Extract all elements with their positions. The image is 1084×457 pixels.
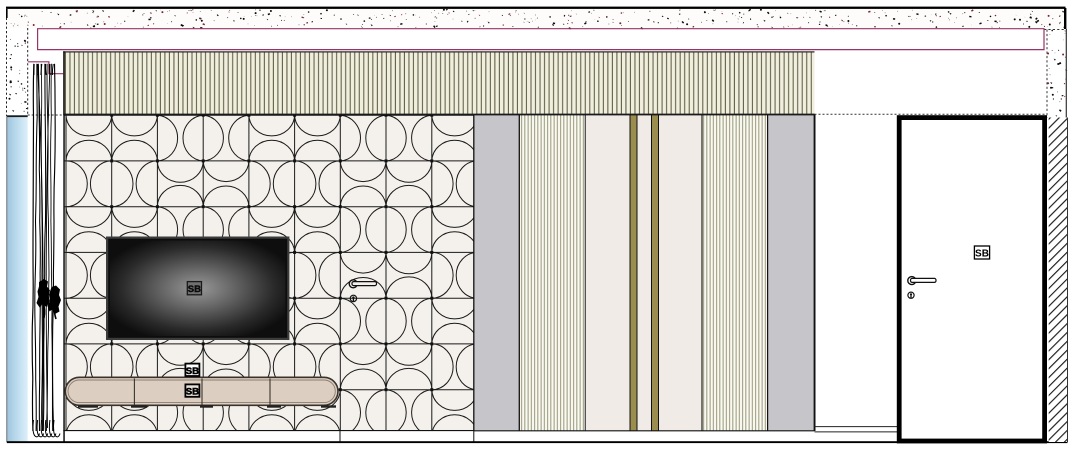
svg-text:SB: SB (188, 284, 201, 295)
svg-text:SB: SB (975, 248, 989, 259)
svg-text:SB: SB (186, 387, 199, 398)
svg-text:SB: SB (186, 366, 199, 377)
